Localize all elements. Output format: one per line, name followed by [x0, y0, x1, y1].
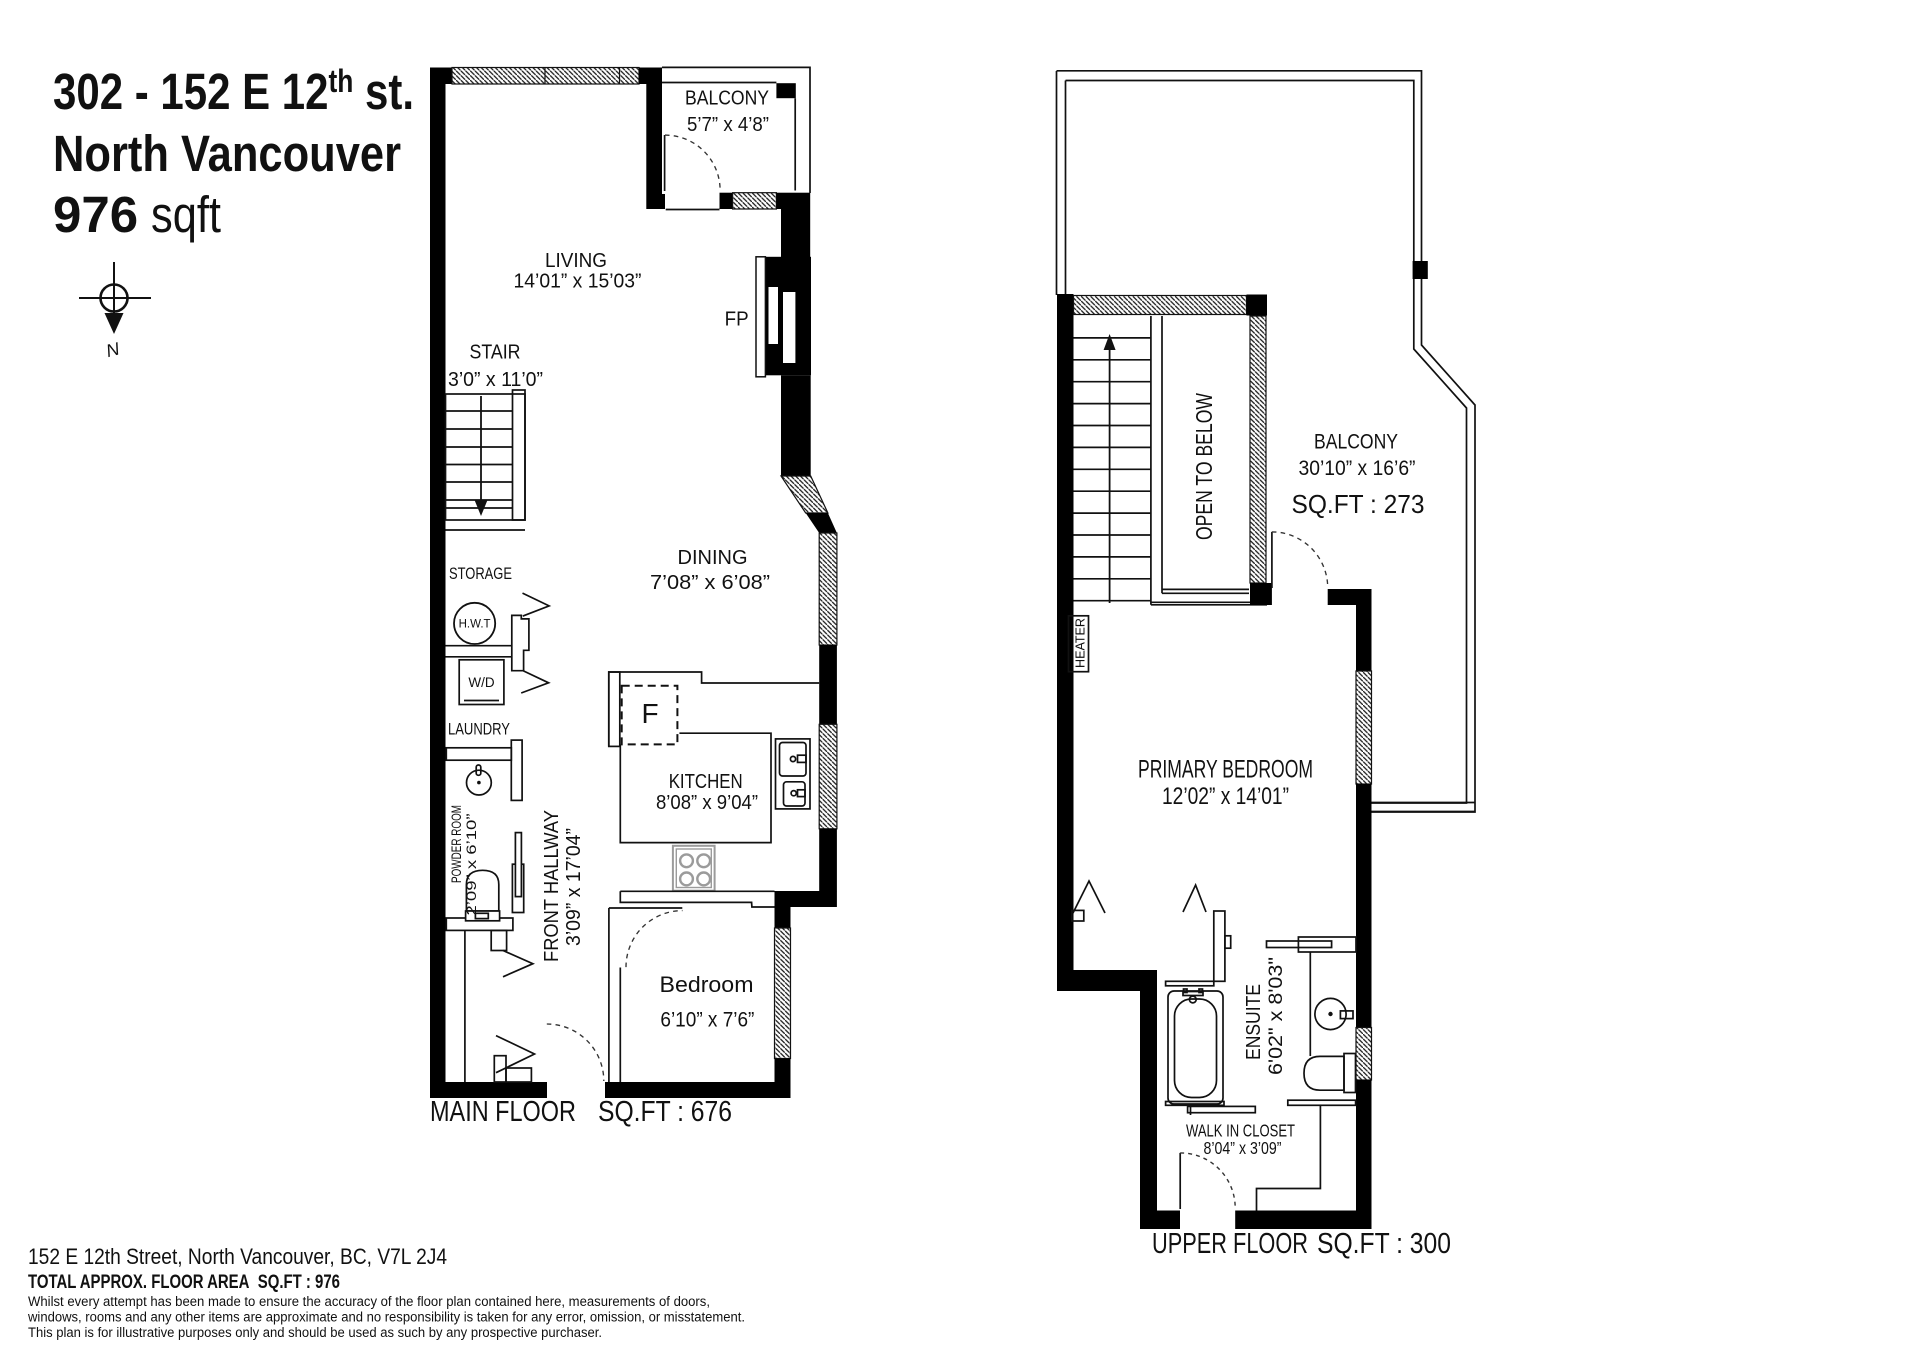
svg-text:6'02" x 8'03": 6'02" x 8'03": [1266, 957, 1287, 1075]
svg-text:This plan is for illustrative: This plan is for illustrative purposes o…: [28, 1325, 602, 1341]
svg-text:DINING: DINING: [678, 547, 748, 569]
svg-text:BALCONY: BALCONY: [685, 88, 769, 110]
svg-text:SQ.FT : 300: SQ.FT : 300: [1317, 1228, 1451, 1260]
svg-text:6’10” x 7’6”: 6’10” x 7’6”: [660, 1009, 754, 1032]
svg-text:OPEN TO BELOW: OPEN TO BELOW: [1191, 393, 1217, 540]
svg-text:LIVING: LIVING: [545, 250, 607, 272]
svg-text:UPPER FLOOR: UPPER FLOOR: [1152, 1228, 1308, 1260]
svg-text:KITCHEN: KITCHEN: [669, 771, 743, 793]
svg-text:PRIMARY BEDROOM: PRIMARY BEDROOM: [1138, 756, 1313, 784]
svg-text:976: 976: [53, 186, 138, 243]
svg-text:North Vancouver: North Vancouver: [53, 125, 401, 182]
svg-text:SQ.FT : 273: SQ.FT : 273: [1292, 489, 1425, 519]
svg-text:14’01” x 15’03”: 14’01” x 15’03”: [514, 271, 642, 293]
svg-text:BALCONY: BALCONY: [1314, 431, 1398, 454]
svg-text:8’04” x 3’09”: 8’04” x 3’09”: [1204, 1138, 1282, 1158]
svg-text:STAIR: STAIR: [470, 342, 521, 364]
svg-text:ENSUITE: ENSUITE: [1243, 984, 1265, 1060]
svg-text:5’7” x 4’8”: 5’7” x 4’8”: [687, 114, 769, 136]
svg-text:2’09” x 6’10”: 2’09” x 6’10”: [463, 813, 479, 915]
svg-text:8’08” x 9’04”: 8’08” x 9’04”: [656, 792, 758, 814]
svg-text:FRONT HALLWAY: FRONT HALLWAY: [541, 810, 563, 962]
svg-text:Whilst every attempt has been: Whilst every attempt has been made to en…: [28, 1294, 710, 1310]
svg-text:MAIN FLOOR: MAIN FLOOR: [430, 1096, 576, 1128]
svg-text:12’02” x 14’01”: 12’02” x 14’01”: [1162, 783, 1289, 810]
svg-text:sqft: sqft: [151, 186, 221, 243]
svg-text:STORAGE: STORAGE: [449, 564, 512, 583]
svg-text:152 E 12th Street, North Vanco: 152 E 12th Street, North Vancouver, BC, …: [28, 1244, 447, 1269]
svg-text:3’09” x 17’04”: 3’09” x 17’04”: [563, 828, 585, 946]
svg-text:302 - 152 E 12th st.: 302 - 152 E 12th st.: [53, 63, 414, 120]
svg-text:windows, rooms and any other i: windows, rooms and any other items are a…: [27, 1310, 745, 1326]
svg-text:3’0” x 11’0”: 3’0” x 11’0”: [448, 369, 543, 391]
svg-text:H.W.T: H.W.T: [459, 619, 491, 631]
svg-text:LAUNDRY: LAUNDRY: [448, 720, 510, 739]
svg-text:POWDER ROOM: POWDER ROOM: [448, 805, 464, 883]
svg-text:Bedroom: Bedroom: [660, 972, 754, 997]
svg-text:7’08” x 6’08”: 7’08” x 6’08”: [650, 572, 770, 594]
svg-text:F: F: [641, 698, 658, 729]
svg-text:W/D: W/D: [468, 675, 494, 690]
svg-text:TOTAL APPROX. FLOOR AREA SQ.F: TOTAL APPROX. FLOOR AREA SQ.FT : 976: [28, 1272, 340, 1293]
svg-text:FP: FP: [725, 309, 749, 331]
svg-text:SQ.FT : 676: SQ.FT : 676: [598, 1096, 732, 1128]
svg-text:30’10” x 16’6”: 30’10” x 16’6”: [1299, 457, 1416, 480]
svg-text:HEATER: HEATER: [1074, 618, 1088, 668]
